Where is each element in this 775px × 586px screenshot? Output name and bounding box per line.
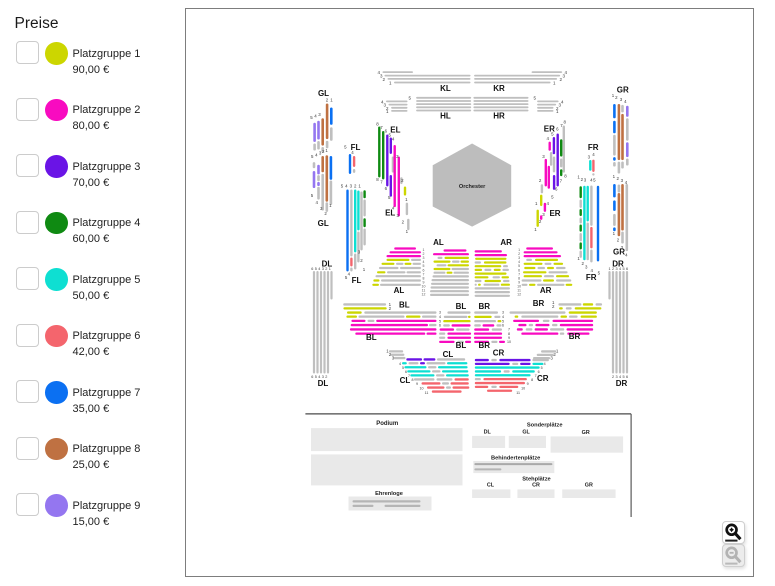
svg-text:KR: KR: [493, 84, 505, 93]
svg-text:3: 3: [542, 154, 545, 159]
svg-text:11: 11: [516, 391, 520, 395]
svg-text:7: 7: [380, 125, 383, 130]
svg-text:ER: ER: [549, 209, 560, 218]
svg-text:5: 5: [551, 195, 554, 200]
svg-text:5: 5: [310, 115, 313, 120]
svg-text:3: 3: [318, 112, 321, 117]
svg-text:3: 3: [584, 178, 587, 183]
svg-text:12: 12: [517, 293, 521, 297]
svg-text:4: 4: [625, 253, 628, 258]
svg-text:5: 5: [341, 184, 344, 189]
svg-text:12: 12: [422, 293, 426, 297]
svg-text:GL: GL: [318, 219, 329, 228]
svg-text:4: 4: [544, 362, 546, 366]
svg-text:FR: FR: [586, 273, 597, 282]
svg-text:CL: CL: [487, 482, 495, 488]
svg-text:EL: EL: [385, 209, 395, 218]
svg-text:8: 8: [376, 177, 379, 182]
svg-text:4: 4: [624, 99, 627, 104]
svg-text:4: 4: [318, 267, 320, 271]
svg-text:1: 1: [330, 98, 333, 103]
svg-text:DL: DL: [318, 379, 329, 388]
svg-text:5: 5: [344, 145, 347, 150]
svg-text:BR: BR: [533, 299, 545, 308]
svg-text:2: 2: [612, 267, 614, 271]
svg-text:2: 2: [617, 238, 620, 243]
svg-text:5: 5: [408, 96, 411, 101]
svg-text:1: 1: [553, 80, 556, 85]
svg-text:10: 10: [507, 340, 511, 344]
svg-text:6: 6: [555, 187, 558, 192]
svg-text:9: 9: [416, 382, 418, 386]
svg-text:2: 2: [402, 220, 405, 225]
svg-text:10: 10: [521, 387, 525, 391]
svg-text:6: 6: [439, 324, 441, 328]
svg-text:BR: BR: [479, 341, 491, 350]
svg-text:5: 5: [534, 96, 537, 101]
svg-text:9: 9: [527, 382, 529, 386]
svg-text:BR: BR: [569, 332, 581, 341]
svg-text:2: 2: [615, 95, 618, 100]
svg-text:DL: DL: [484, 430, 492, 436]
svg-text:CL: CL: [400, 376, 411, 385]
svg-text:CR: CR: [537, 374, 549, 383]
svg-text:BL: BL: [456, 302, 467, 311]
svg-text:2: 2: [539, 178, 542, 183]
svg-text:GR: GR: [617, 86, 629, 95]
svg-text:1: 1: [329, 267, 331, 271]
svg-text:6: 6: [502, 324, 504, 328]
svg-text:1: 1: [386, 109, 389, 114]
svg-text:6: 6: [311, 375, 313, 379]
svg-text:3: 3: [621, 178, 624, 183]
svg-text:BR: BR: [479, 302, 491, 311]
svg-text:3: 3: [322, 267, 324, 271]
svg-text:2: 2: [354, 184, 357, 189]
svg-text:6: 6: [626, 267, 628, 271]
svg-text:Orchester: Orchester: [459, 184, 486, 190]
svg-text:2: 2: [326, 98, 329, 103]
svg-text:5: 5: [315, 375, 317, 379]
svg-text:BL: BL: [399, 301, 410, 310]
svg-text:3: 3: [542, 212, 545, 217]
svg-text:2: 2: [382, 77, 385, 82]
svg-text:10: 10: [420, 387, 424, 391]
svg-text:7: 7: [380, 180, 383, 185]
svg-text:8: 8: [376, 122, 379, 127]
svg-text:AL: AL: [394, 286, 405, 295]
svg-text:FL: FL: [352, 276, 362, 285]
svg-text:5: 5: [541, 366, 543, 370]
svg-text:6: 6: [385, 129, 388, 134]
svg-text:6: 6: [405, 370, 407, 374]
svg-text:3: 3: [358, 250, 361, 255]
svg-text:GL: GL: [318, 89, 329, 98]
svg-text:2: 2: [360, 258, 363, 263]
svg-text:4: 4: [348, 272, 351, 277]
svg-text:3: 3: [585, 265, 588, 270]
svg-text:4: 4: [315, 200, 318, 205]
svg-text:2: 2: [612, 375, 614, 379]
svg-text:2: 2: [325, 267, 327, 271]
svg-text:1: 1: [556, 349, 559, 354]
svg-text:BL: BL: [456, 341, 467, 350]
svg-text:4: 4: [392, 137, 395, 142]
svg-text:HR: HR: [493, 111, 505, 120]
svg-text:AR: AR: [540, 286, 552, 295]
svg-text:DR: DR: [616, 379, 628, 388]
svg-text:6: 6: [385, 186, 388, 191]
svg-text:GR: GR: [582, 430, 590, 436]
svg-text:CR: CR: [493, 348, 505, 357]
svg-text:5: 5: [311, 154, 314, 159]
svg-text:1: 1: [405, 197, 408, 202]
svg-text:1: 1: [613, 231, 616, 236]
svg-text:BL: BL: [366, 333, 377, 342]
svg-text:3: 3: [615, 267, 617, 271]
svg-text:6: 6: [311, 267, 313, 271]
svg-text:GL: GL: [522, 430, 530, 436]
svg-text:Podium: Podium: [376, 421, 398, 427]
svg-text:2: 2: [616, 176, 619, 181]
svg-text:1: 1: [363, 267, 366, 272]
svg-text:Sonderplätze: Sonderplätze: [527, 423, 563, 429]
svg-text:8: 8: [564, 174, 567, 179]
svg-text:4: 4: [314, 114, 317, 119]
svg-text:CR: CR: [532, 482, 540, 488]
svg-text:1: 1: [535, 201, 538, 206]
svg-text:1: 1: [556, 109, 559, 114]
svg-text:4: 4: [592, 152, 595, 157]
svg-text:11: 11: [425, 391, 429, 395]
svg-text:1: 1: [389, 80, 392, 85]
svg-text:3: 3: [620, 97, 623, 102]
svg-text:2: 2: [389, 306, 392, 311]
svg-text:8: 8: [563, 120, 566, 125]
svg-text:GR: GR: [585, 482, 593, 488]
svg-text:CL: CL: [443, 350, 454, 359]
svg-text:5: 5: [622, 267, 624, 271]
svg-text:4: 4: [619, 267, 621, 271]
svg-text:5: 5: [311, 193, 314, 198]
svg-text:6: 6: [556, 127, 559, 132]
svg-text:5: 5: [315, 267, 317, 271]
svg-text:1: 1: [608, 267, 610, 271]
svg-text:8: 8: [531, 378, 533, 382]
svg-text:2: 2: [401, 178, 404, 183]
svg-text:7: 7: [560, 179, 563, 184]
svg-text:AR: AR: [500, 238, 512, 247]
svg-text:1: 1: [534, 227, 537, 232]
svg-text:4: 4: [345, 184, 348, 189]
svg-text:EL: EL: [390, 126, 400, 135]
svg-text:4: 4: [315, 153, 318, 158]
svg-text:KL: KL: [440, 84, 451, 93]
svg-text:5: 5: [593, 178, 596, 183]
svg-text:5: 5: [598, 271, 601, 276]
svg-text:1: 1: [325, 148, 328, 153]
svg-text:Behindertenplätze: Behindertenplätze: [491, 455, 540, 461]
svg-text:4: 4: [399, 362, 401, 366]
svg-text:FR: FR: [588, 143, 599, 152]
svg-text:3: 3: [588, 155, 591, 160]
svg-text:1: 1: [358, 184, 361, 189]
svg-text:Ehrenloge: Ehrenloge: [375, 491, 403, 497]
svg-text:4: 4: [546, 201, 549, 206]
svg-text:4: 4: [546, 136, 549, 141]
svg-text:4: 4: [561, 100, 564, 105]
svg-text:GR: GR: [613, 248, 625, 257]
svg-text:2: 2: [552, 304, 555, 309]
svg-text:AL: AL: [433, 238, 444, 247]
svg-text:1: 1: [613, 174, 616, 179]
svg-text:HL: HL: [440, 111, 451, 120]
svg-text:8: 8: [412, 378, 414, 382]
svg-text:3: 3: [350, 184, 353, 189]
svg-text:5: 5: [402, 366, 404, 370]
